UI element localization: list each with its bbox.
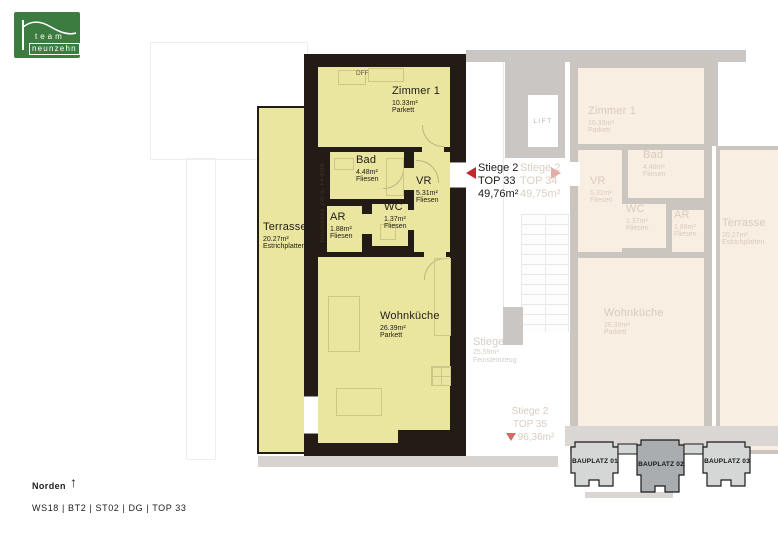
label-vr: VR 5.31m² Fliesen (416, 176, 439, 205)
wall-height-note: Raumhöhe 2m ü. FFBOK (320, 92, 326, 242)
bauplatz-03-label: BAUPLATZ 03 (699, 458, 755, 465)
furniture-table (336, 388, 382, 416)
neighbor-room-bad (628, 150, 704, 198)
stair-treads (521, 214, 569, 332)
building-connector (684, 444, 703, 454)
bauplatz-02-label: BAUPLATZ 02 (633, 461, 689, 468)
label-wc: WC 1.37m² Fliesen (384, 202, 407, 231)
logo-text-team: team (35, 32, 65, 41)
neighbor-room-terrasse (716, 146, 778, 454)
label-zimmer1: Zimmer 1 10.33m² Parkett (392, 86, 440, 115)
north-label: Norden (32, 481, 66, 491)
top35-label: Stiege 2 TOP 35 96,36m² (490, 405, 570, 444)
neighbor-label-terrasse: Terrasse 20.27m² Estrichplatten (722, 218, 766, 247)
label-terrasse: Terrasse 20.27m² Estrichplatten (263, 222, 307, 251)
label-wohnkueche: Wohnküche 26.39m² Parkett (380, 311, 440, 340)
label-ar: AR 1.88m² Fliesen (330, 212, 353, 241)
lift-cab: LIFT (528, 95, 558, 147)
stiege-area: 25,59m² (473, 349, 517, 357)
neighbor-room-wohnkueche (578, 258, 704, 440)
entrance-arrow-icon (466, 167, 476, 179)
top35-area: 96,36m² (518, 432, 555, 443)
entrance-door-gap (450, 162, 466, 188)
door-gap-wohnkueche (424, 252, 446, 257)
bauplatz-01-label: BAUPLATZ 01 (567, 458, 623, 465)
faint-context-outline (186, 158, 216, 460)
unit-wall-step (398, 430, 466, 456)
door-gap-zimmer (422, 147, 444, 152)
neighbor-label-ar: AR 1.88m² Fliesen (674, 210, 697, 239)
terrace-door-gap (304, 396, 318, 434)
floorplan-page: team neunzehn LIFT Stiege 25,59m² Feinst… (0, 0, 778, 550)
door-gap-bad (404, 168, 414, 190)
neighbor-label-vr: VR 5.31m² Fliesen (590, 176, 613, 205)
stiege-floor: Feinsteinzeug (473, 357, 517, 365)
unit-tag-top33: Stiege 2 TOP 33 49,76m² (478, 162, 518, 201)
label-bad: Bad 4.48m² Fliesen (356, 155, 379, 184)
arrow-down-icon (506, 433, 516, 441)
north-arrow-icon: ↑ (70, 474, 77, 490)
top35-area-line: 96,36m² (490, 431, 570, 444)
neighbor-label-wc: WC 1.37m² Fliesen (626, 204, 649, 233)
logo-text-neunzehn: neunzehn (29, 43, 80, 55)
door-gap-wc (408, 210, 414, 230)
furniture-sofa (328, 296, 360, 352)
neighbor-label-zimmer1: Zimmer 1 10.33m² Parkett (588, 106, 636, 135)
project-code: WS18 | BT2 | ST02 | DG | TOP 33 (32, 503, 187, 513)
neighbor-label-bad: Bad 4.48m² Fliesen (643, 150, 666, 179)
stair-landing (503, 307, 523, 345)
lower-wall-band (258, 456, 558, 467)
furniture-stove (431, 366, 451, 386)
door-gap-ar (362, 214, 372, 234)
room-terrasse (257, 106, 307, 454)
top35-top: TOP 35 (490, 418, 570, 431)
furniture-shower (386, 158, 404, 196)
dff-note: DFF (356, 70, 369, 77)
furniture-bed (368, 68, 404, 82)
team-neunzehn-logo: team neunzehn (14, 12, 80, 58)
furniture-basin (334, 158, 354, 170)
top35-stiege: Stiege 2 (490, 405, 570, 418)
neighbor-entrance-arrow-icon (551, 167, 561, 179)
lift-label: LIFT (533, 118, 552, 125)
building-connector (618, 444, 637, 454)
neighbor-entrance-gap (570, 162, 580, 186)
neighbor-label-wohnkueche: Wohnküche 26.39m² Parkett (604, 308, 664, 337)
